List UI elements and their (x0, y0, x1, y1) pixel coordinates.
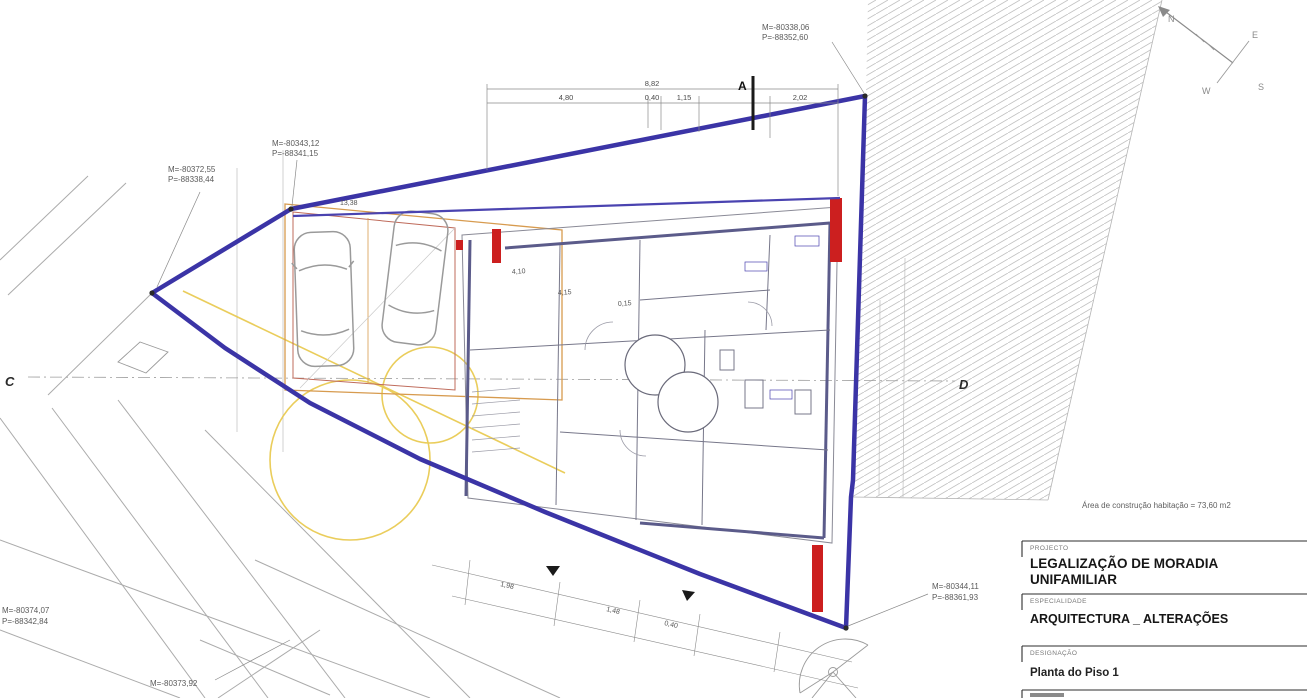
titleblock-next-row-stub (1030, 693, 1064, 697)
car-2 (380, 209, 450, 347)
project-title-line1: LEGALIZAÇÃO DE MORADIA (1030, 556, 1218, 571)
dim-top-2: 0,40 (645, 93, 660, 102)
section-marker-d: D (959, 377, 969, 392)
red-wall-markers (456, 198, 842, 612)
titleblock-label-specialty: ESPECIALIDADE (1030, 598, 1087, 605)
survey-upperleft-p: P=-88341,15 (272, 149, 319, 158)
section-marker-c: C (5, 374, 15, 389)
sheet-title: Planta do Piso 1 (1030, 667, 1119, 679)
road-and-lot-lines (0, 176, 560, 698)
titleblock-label-project: PROJECTO (1030, 545, 1068, 552)
hatched-neighbour-area (852, 0, 1162, 500)
titleblock-label-designation: DESIGNAÇÃO (1030, 648, 1077, 657)
survey-bottom-m: M=-80373,92 (150, 679, 198, 688)
survey-bottomleft-p: P=-88342,84 (2, 617, 49, 626)
compass-n: N (1168, 14, 1175, 24)
dim-int-3: 0,15 (618, 300, 632, 308)
compass-e: E (1252, 30, 1258, 40)
section-line-cd: C D (5, 374, 969, 392)
dim-int-1: 4,10 (512, 268, 526, 276)
dim-bot-2: 1,48 (606, 606, 621, 616)
dim-top-total: 8,82 (645, 79, 660, 88)
dim-int-2: 4,15 (558, 289, 572, 297)
survey-top-p: P=-88352,60 (762, 33, 809, 42)
dim-bot-1: 1,98 (500, 581, 515, 591)
compass-rose: N E S W (1158, 6, 1264, 96)
floor-plan (462, 207, 838, 543)
survey-upperleft-m: M=-80343,12 (272, 139, 320, 148)
property-boundary (149, 93, 867, 630)
project-title-line2: UNIFAMILIAR (1030, 572, 1117, 587)
survey-bottomright-p: P=-88361,93 (932, 593, 979, 602)
survey-bottomleft-m: M=-80374,07 (2, 606, 50, 615)
area-note: Área de construção habitação = 73,60 m2 (1082, 501, 1231, 510)
site-plan-sheet: C D (0, 0, 1307, 698)
dim-top-4: 2,02 (793, 93, 808, 102)
survey-left-p: P=-88338,44 (168, 175, 215, 184)
gate-swing-fan (799, 639, 868, 698)
garage-outline (285, 204, 562, 400)
dim-garage: 13,38 (340, 200, 358, 207)
survey-labels: M=-80338,06 P=-88352,60 M=-80343,12 P=-8… (2, 23, 979, 688)
interior-dimensions: 4,10 4,15 0,15 13,38 (340, 200, 632, 308)
dim-top-1: 4,80 (559, 93, 574, 102)
dim-top-3: 1,15 (677, 93, 692, 102)
plan-canvas: C D (0, 0, 1307, 698)
svg-text:A: A (738, 79, 747, 93)
survey-left-m: M=-80372,55 (168, 165, 216, 174)
compass-s: S (1258, 82, 1264, 92)
survey-bottomright-m: M=-80344,11 (932, 582, 979, 591)
specialty-title: ARQUITECTURA _ ALTERAÇÕES (1030, 611, 1228, 626)
compass-w: W (1202, 86, 1211, 96)
title-block: PROJECTO LEGALIZAÇÃO DE MORADIA UNIFAMIL… (1022, 541, 1307, 698)
survey-top-m: M=-80338,06 (762, 23, 810, 32)
